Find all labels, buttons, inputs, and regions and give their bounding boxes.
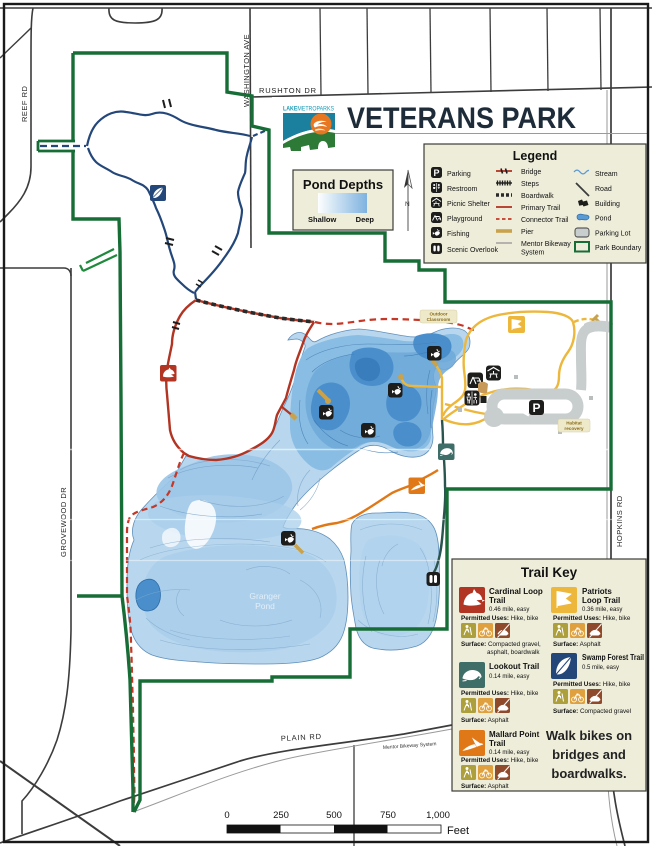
svg-text:System: System xyxy=(521,250,545,257)
svg-text:1,000: 1,000 xyxy=(426,810,450,821)
svg-text:HOPKINS RD: HOPKINS RD xyxy=(615,495,624,547)
svg-text:asphalt, boardwalk: asphalt, boardwalk xyxy=(487,649,540,656)
svg-text:Primary Trail: Primary Trail xyxy=(521,205,561,212)
svg-text:250: 250 xyxy=(273,810,289,821)
svg-text:0: 0 xyxy=(224,810,229,821)
svg-text:LAKEMETROPARKS: LAKEMETROPARKS xyxy=(283,107,334,113)
svg-text:Pier: Pier xyxy=(521,229,534,236)
svg-text:Trail: Trail xyxy=(489,739,505,748)
svg-text:750: 750 xyxy=(380,810,396,821)
svg-text:Permitted Uses: Hike, bike: Permitted Uses: Hike, bike xyxy=(461,690,539,697)
svg-text:boardwalks.: boardwalks. xyxy=(551,766,626,781)
svg-text:Surface: Compacted gravel: Surface: Compacted gravel xyxy=(553,708,631,715)
svg-text:0.46 mile, easy: 0.46 mile, easy xyxy=(489,607,529,613)
svg-text:Granger: Granger xyxy=(249,591,280,601)
svg-text:Mallard Point: Mallard Point xyxy=(489,730,540,739)
svg-text:Boardwalk: Boardwalk xyxy=(521,193,554,200)
svg-text:Walk bikes on: Walk bikes on xyxy=(546,728,632,743)
svg-text:Feet: Feet xyxy=(447,825,469,837)
svg-text:Cardinal Loop: Cardinal Loop xyxy=(489,587,543,596)
svg-text:bridges and: bridges and xyxy=(552,747,626,762)
svg-text:Lookout Trail: Lookout Trail xyxy=(489,662,539,671)
svg-text:500: 500 xyxy=(326,810,342,821)
svg-text:Stream: Stream xyxy=(595,171,618,178)
svg-text:REEF RD: REEF RD xyxy=(20,85,29,122)
svg-text:Swamp Forest Trail: Swamp Forest Trail xyxy=(582,653,644,662)
svg-text:GROVEWOOD DR: GROVEWOOD DR xyxy=(59,487,68,557)
svg-text:Surface: Compacted gravel,: Surface: Compacted gravel, xyxy=(461,641,541,648)
svg-text:Permitted Uses: Hike, bike: Permitted Uses: Hike, bike xyxy=(553,615,631,622)
svg-text:Pond Depths: Pond Depths xyxy=(303,177,383,192)
svg-text:Parking: Parking xyxy=(447,171,471,178)
svg-text:Permitted Uses: Hike, bike: Permitted Uses: Hike, bike xyxy=(461,615,539,622)
svg-text:RUSHTON DR: RUSHTON DR xyxy=(259,86,317,95)
svg-text:recovery: recovery xyxy=(564,426,584,431)
svg-text:Legend: Legend xyxy=(513,149,557,163)
svg-text:Classroom: Classroom xyxy=(427,317,451,322)
svg-text:0.5 mile, easy: 0.5 mile, easy xyxy=(582,665,619,671)
svg-text:N: N xyxy=(405,201,410,208)
svg-text:Trail Key: Trail Key xyxy=(521,565,578,580)
svg-text:Deep: Deep xyxy=(356,215,375,224)
svg-text:Pond: Pond xyxy=(255,601,275,611)
svg-text:P: P xyxy=(532,401,540,415)
svg-text:Bridge: Bridge xyxy=(521,169,541,176)
svg-text:Surface: Asphalt: Surface: Asphalt xyxy=(461,783,509,790)
svg-text:Permitted Uses: Hike, bike: Permitted Uses: Hike, bike xyxy=(461,757,539,764)
svg-text:Fishing: Fishing xyxy=(447,231,470,238)
svg-text:0.36 mile, easy: 0.36 mile, easy xyxy=(582,607,622,613)
svg-text:Outdoor: Outdoor xyxy=(429,312,447,317)
svg-text:Habitat: Habitat xyxy=(566,421,582,426)
svg-text:P: P xyxy=(433,168,439,178)
svg-text:Steps: Steps xyxy=(521,181,539,188)
svg-text:Picnic Shelter: Picnic Shelter xyxy=(447,201,490,208)
svg-text:Shallow: Shallow xyxy=(308,215,337,224)
svg-text:Surface: Asphalt: Surface: Asphalt xyxy=(553,641,601,648)
svg-text:Parking Lot: Parking Lot xyxy=(595,231,630,238)
svg-text:Mentor Bikeway: Mentor Bikeway xyxy=(521,241,571,248)
svg-text:Pond: Pond xyxy=(595,216,611,223)
svg-text:Loop Trail: Loop Trail xyxy=(582,596,620,605)
svg-text:Scenic Overlook: Scenic Overlook xyxy=(447,247,498,254)
svg-text:Patriots: Patriots xyxy=(582,587,612,596)
svg-text:Playground: Playground xyxy=(447,216,483,223)
svg-text:VETERANS PARK: VETERANS PARK xyxy=(347,102,576,135)
svg-text:Park Boundary: Park Boundary xyxy=(595,245,642,252)
svg-text:Restroom: Restroom xyxy=(447,186,478,193)
svg-text:Road: Road xyxy=(595,186,612,193)
svg-text:Surface: Asphalt: Surface: Asphalt xyxy=(461,717,509,724)
svg-text:Connector Trail: Connector Trail xyxy=(521,217,569,224)
svg-text:Building: Building xyxy=(595,201,620,208)
svg-text:0.14 mile, easy: 0.14 mile, easy xyxy=(489,750,529,756)
svg-text:0.14 mile, easy: 0.14 mile, easy xyxy=(489,674,529,680)
svg-text:Trail: Trail xyxy=(489,596,505,605)
svg-text:Permitted Uses: Hike, bike: Permitted Uses: Hike, bike xyxy=(553,681,631,688)
